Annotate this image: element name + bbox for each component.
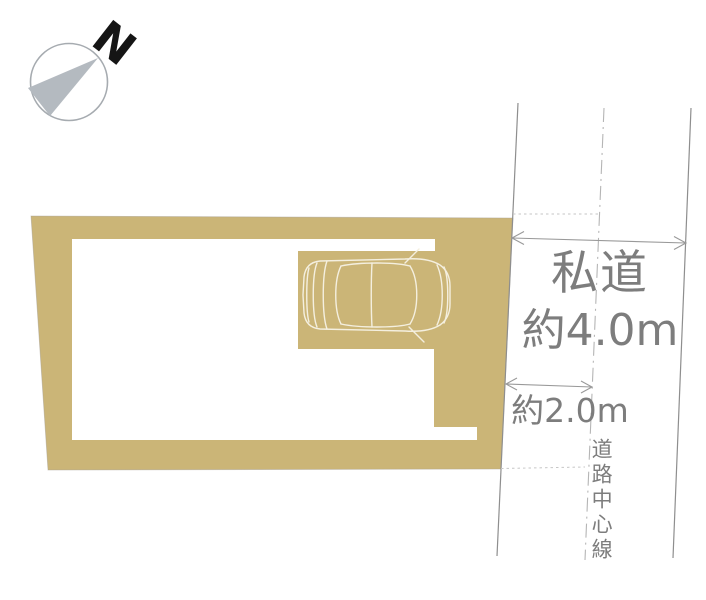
road-centerline-label: 道路中心線: [589, 438, 612, 578]
road-half-width-label: 約2.0m: [502, 392, 638, 430]
plot-corner-guide-bottom: [501, 467, 585, 469]
plot-diagram: N 私道 約4.0m 約2.0m 道路中心線: [0, 0, 706, 600]
road-name-label: 私道: [512, 248, 688, 300]
road-width-label: 約4.0m: [512, 306, 688, 357]
